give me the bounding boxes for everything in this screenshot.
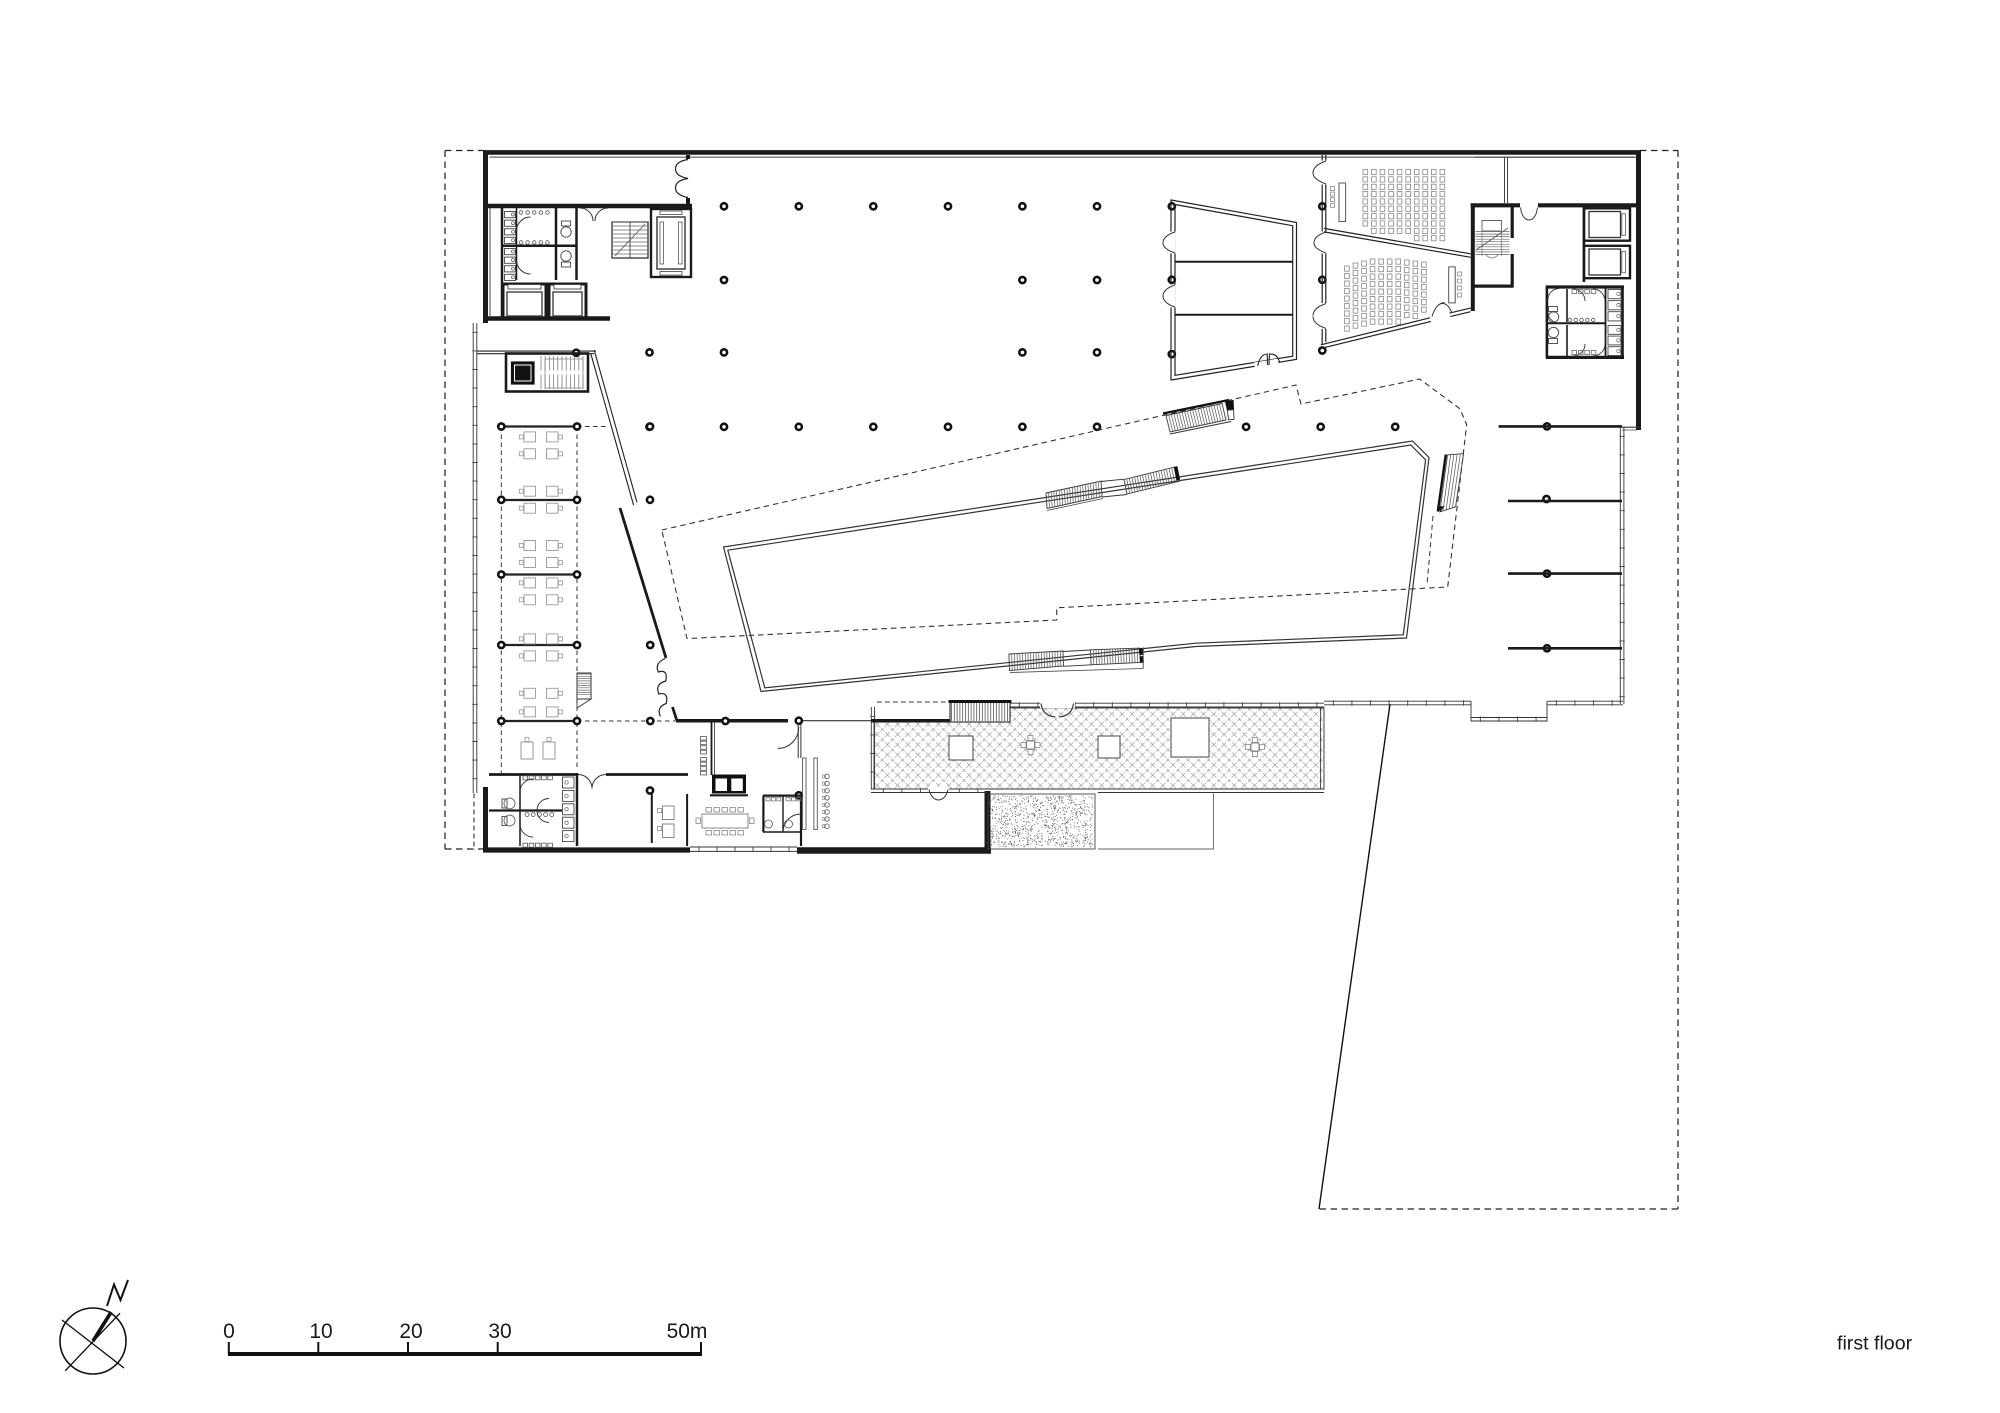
svg-text:0: 0 bbox=[223, 1320, 235, 1343]
svg-text:30: 30 bbox=[488, 1320, 511, 1343]
svg-text:first floor: first floor bbox=[1837, 1333, 1913, 1355]
svg-text:20: 20 bbox=[399, 1320, 422, 1343]
svg-text:50m: 50m bbox=[667, 1320, 708, 1343]
svg-text:10: 10 bbox=[309, 1320, 332, 1343]
